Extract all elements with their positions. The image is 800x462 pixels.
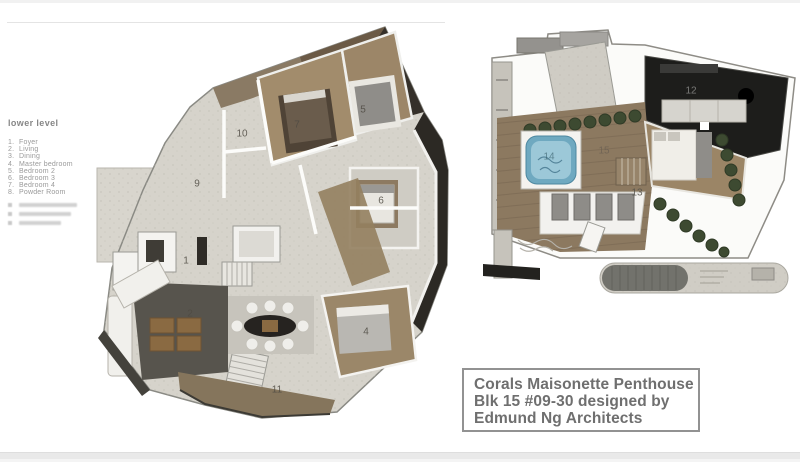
project-title-line-1: Corals Maisonette Penthouse <box>474 376 688 393</box>
media-room-sofa <box>662 100 746 122</box>
stair-void <box>197 237 207 265</box>
project-title-line-2: Blk 15 #09-30 designed by <box>474 393 688 410</box>
lower-level-plan <box>97 27 448 418</box>
jacuzzi <box>521 131 581 189</box>
project-title-box: Corals Maisonette Penthouse Blk 15 #09-3… <box>462 368 700 432</box>
media-room-table <box>700 122 709 130</box>
bedroom-5-bed <box>349 75 402 133</box>
terrace-capsule <box>600 263 788 293</box>
bedroom-4-bed <box>336 304 391 354</box>
stairs-lower <box>222 262 252 286</box>
dark-edge-band <box>483 264 540 280</box>
upper-bedroom-headboard <box>696 132 712 178</box>
page: lower level 1. Foyer 2. Living 3. Dining… <box>0 0 800 462</box>
powder-room-fixture <box>146 240 164 262</box>
media-room-tv <box>660 64 718 73</box>
stairs-deck <box>616 158 646 185</box>
upper-level-plan <box>483 30 795 293</box>
capsule-deck <box>602 265 688 291</box>
project-title-line-3: Edmund Ng Architects <box>474 410 688 427</box>
